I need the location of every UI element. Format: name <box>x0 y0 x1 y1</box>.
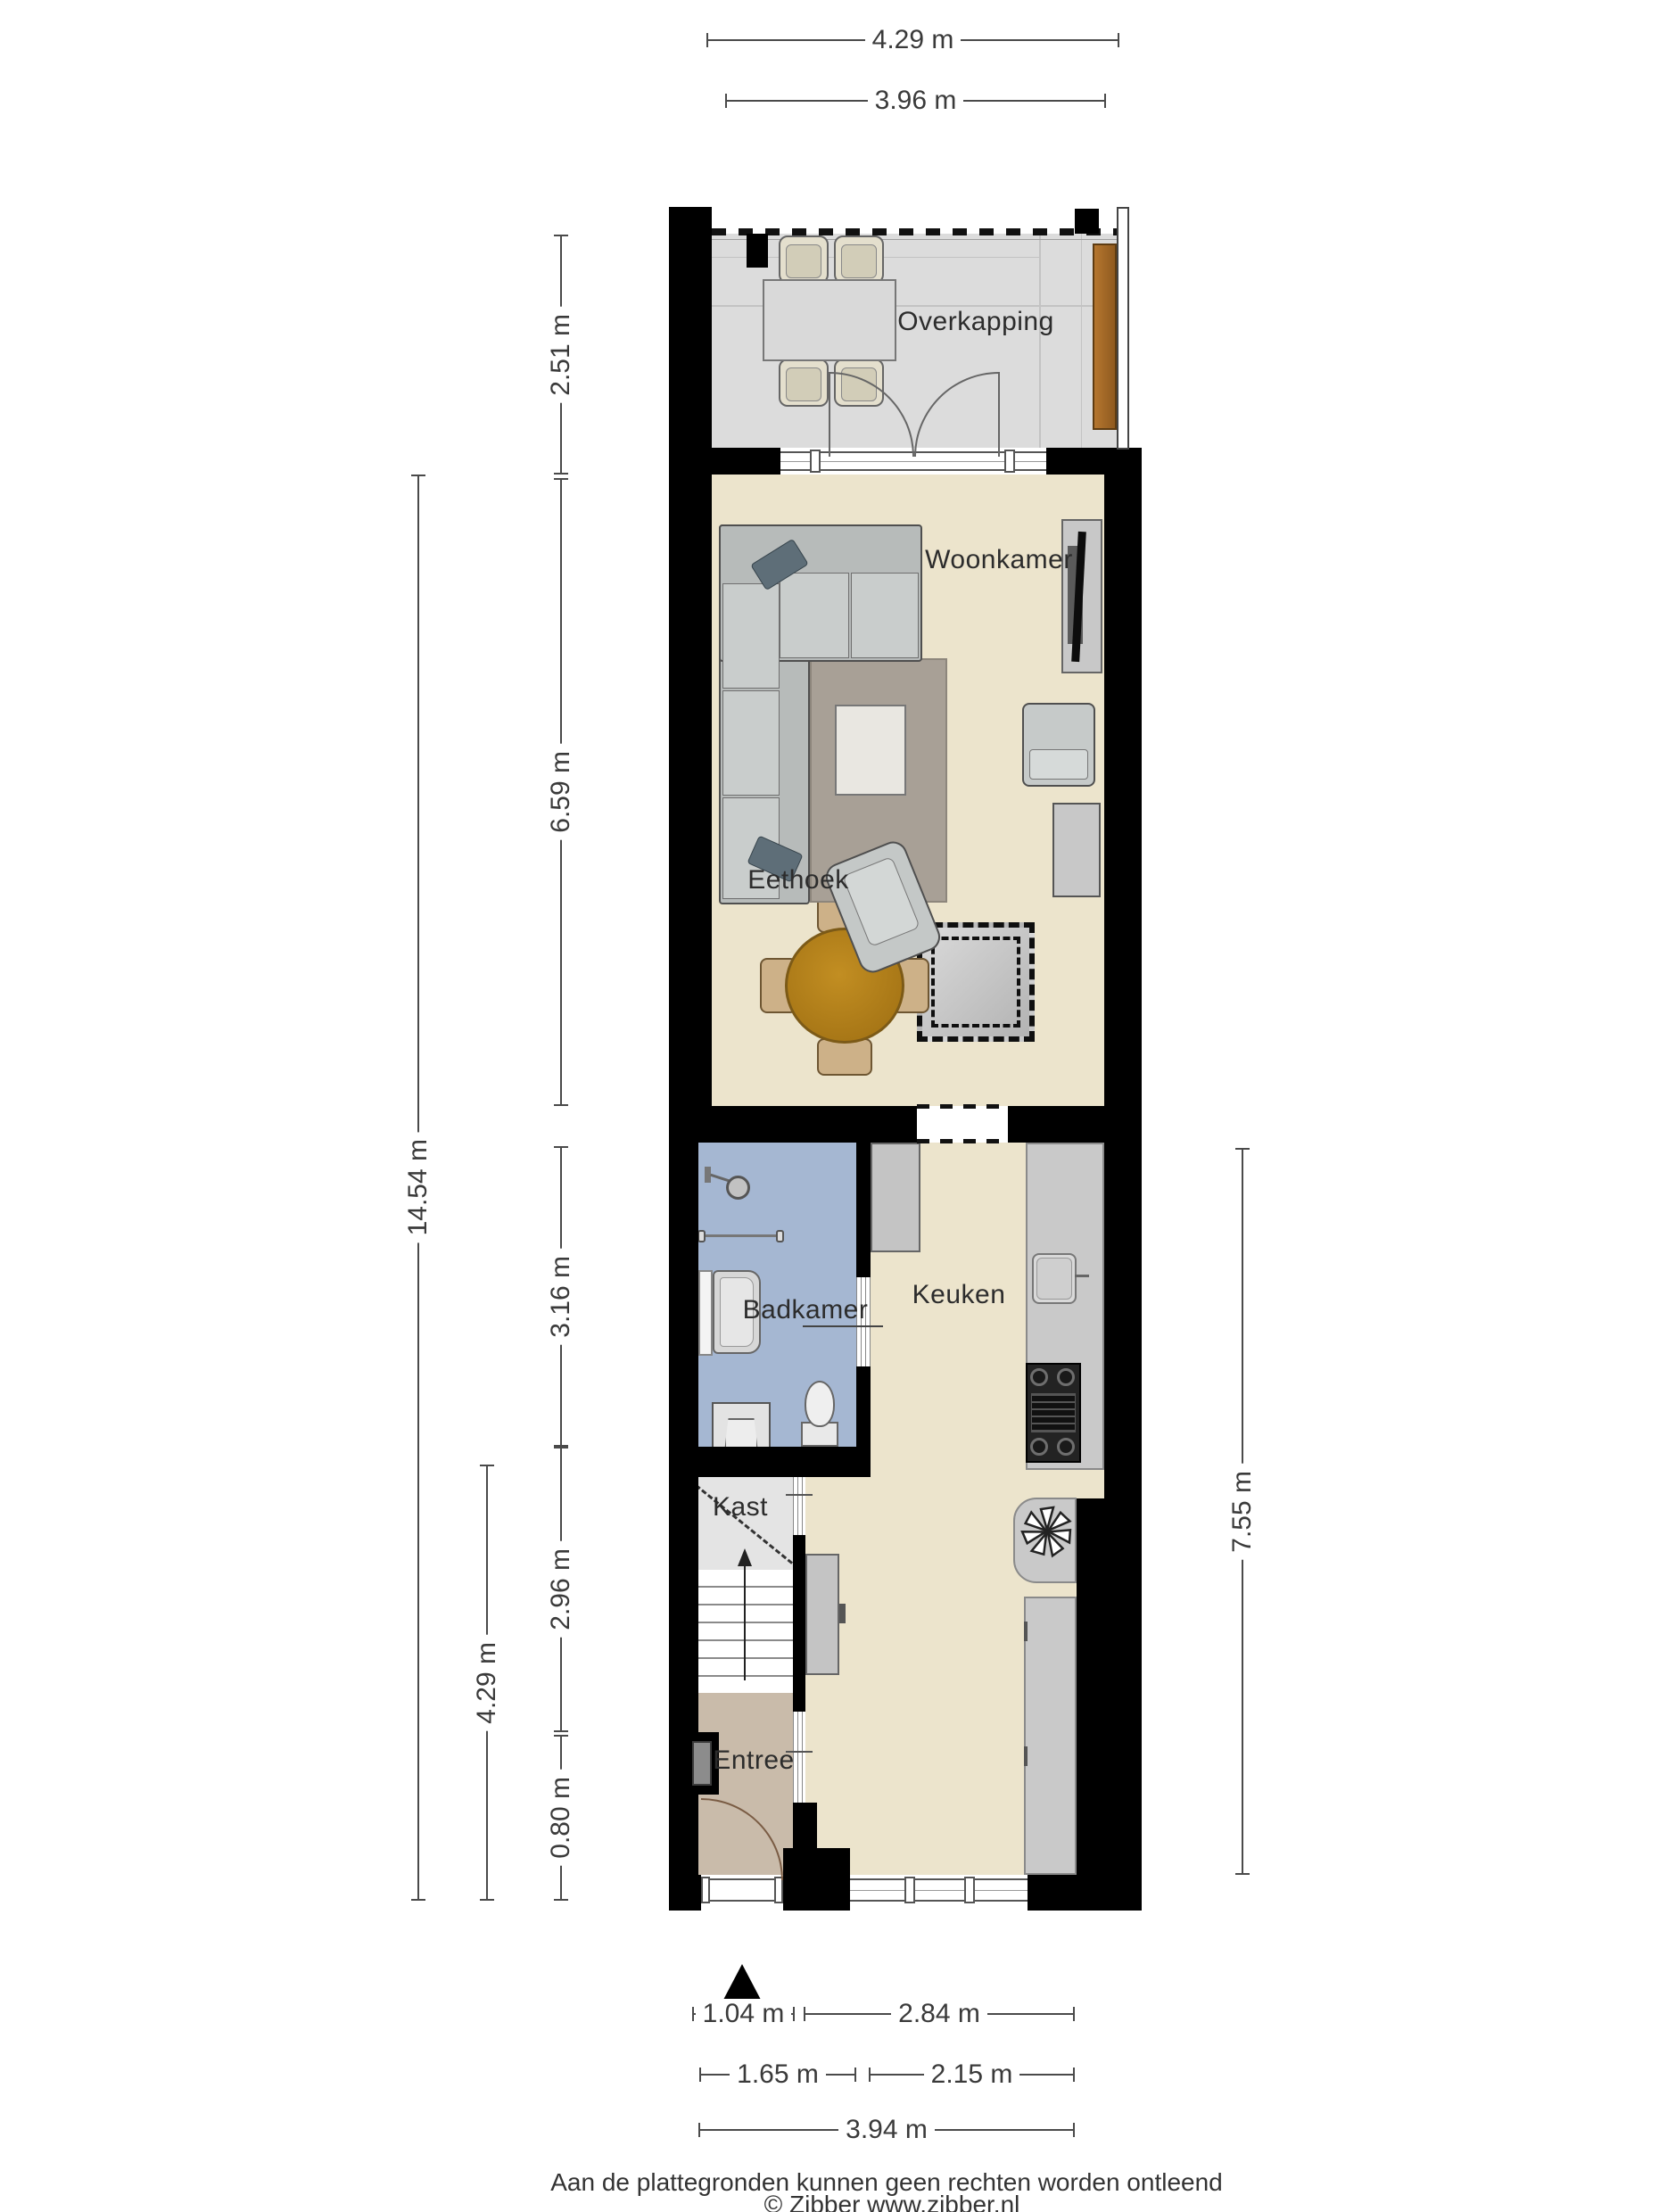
room-label-woonkamer: Woonkamer <box>925 545 1073 575</box>
interior-window <box>793 1477 805 1535</box>
wall-stub <box>1075 209 1099 234</box>
dimension-line-entree-depth: 0.80 m <box>546 1735 576 1901</box>
kitchen-cabinet <box>871 1143 920 1252</box>
side-chair-seat <box>1029 749 1088 780</box>
room-label-eethoek: Eethoek <box>747 865 849 896</box>
coffee-table <box>835 705 906 796</box>
fan-icon <box>1019 1503 1076 1560</box>
wall-segment <box>669 1106 917 1143</box>
dimension-line-bottom-2-84: 2.84 m <box>804 1999 1075 2029</box>
threshold-end <box>701 1877 710 1903</box>
north-arrow-icon <box>723 1964 761 2000</box>
towel-rail <box>702 1234 780 1237</box>
vanity-counter <box>698 1270 713 1356</box>
wall-segment <box>783 1848 850 1911</box>
burner-icon <box>1030 1438 1048 1456</box>
open-edge-line <box>712 239 1117 240</box>
floor-seam <box>1081 234 1082 448</box>
window-mullion <box>810 450 821 473</box>
burner-icon <box>1057 1438 1075 1456</box>
dashed-planned-element-inner <box>931 937 1020 1028</box>
open-edge-dashed-line <box>712 228 1129 235</box>
room-label-overkapping: Overkapping <box>897 307 1054 337</box>
shower-head <box>726 1176 750 1200</box>
window-mullion <box>904 1877 915 1903</box>
wall-stub <box>747 234 768 268</box>
wall-segment <box>1008 1106 1142 1143</box>
sofa-cushion <box>780 573 849 658</box>
wall-segment <box>1046 448 1142 475</box>
dimension-line-bottom-3-94: 3.94 m <box>698 2115 1075 2145</box>
faucet-icon <box>1075 1275 1089 1277</box>
dimension-line-top-outer: 4.29 m <box>706 25 1119 55</box>
stove-grill <box>1031 1393 1076 1432</box>
dimension-line-bottom-2-15: 2.15 m <box>869 2059 1075 2090</box>
cabinet-handle <box>1024 1622 1028 1641</box>
kitchen-counter <box>1024 1597 1077 1875</box>
cabinet <box>805 1554 839 1675</box>
stairs-up-arrow <box>738 1548 752 1566</box>
burner-icon <box>1030 1368 1048 1386</box>
window-mullion <box>1004 450 1015 473</box>
dimension-line-top-inner: 3.96 m <box>725 86 1106 116</box>
terrace-chair <box>779 359 829 407</box>
wall-segment <box>1077 1498 1142 1911</box>
dimension-line-bottom-1-04: 1.04 m <box>692 1999 795 2029</box>
dining-chair <box>817 1038 872 1076</box>
wall-segment <box>793 1535 805 1712</box>
wall-segment <box>669 1875 701 1911</box>
room-label-keuken: Keuken <box>912 1280 1006 1310</box>
wood-fence-panel <box>1093 243 1117 430</box>
window-center-tick <box>786 1494 813 1496</box>
dimension-line-keuken-depth: 7.55 m <box>1227 1148 1258 1875</box>
terrace-table <box>763 279 896 361</box>
wall-segment <box>793 1803 817 1848</box>
room-label-entree: Entree <box>713 1746 794 1776</box>
label-leader-line <box>803 1325 883 1327</box>
floor-plan-page: Overkapping Woonkamer Eethoek Badkamer K… <box>0 0 1659 2212</box>
dimension-line-total-depth: 14.54 m <box>403 475 433 1901</box>
toilet <box>805 1381 835 1427</box>
copyright-text: © Zibber www.zibber.nl <box>764 2191 1020 2212</box>
window-mullion <box>964 1877 975 1903</box>
sofa-cushion <box>851 573 919 658</box>
kitchen-sink-basin <box>1036 1258 1072 1300</box>
wall-segment <box>1028 1875 1142 1911</box>
terrace-chair <box>779 235 829 284</box>
stairs-direction-line <box>744 1563 746 1680</box>
interior-window <box>793 1712 805 1803</box>
terrace-chair <box>834 235 884 284</box>
dimension-line-woonkamer-depth: 6.59 m <box>546 478 576 1106</box>
opening-dashed-line <box>917 1139 1008 1143</box>
cabinet-handle <box>1024 1746 1028 1766</box>
towel-rail-end <box>697 1230 706 1242</box>
sofa-cushion <box>722 583 780 689</box>
floor-seam <box>1039 234 1041 448</box>
wall-segment <box>856 1366 871 1447</box>
wall-segment <box>856 1143 871 1277</box>
cabinet-handle <box>839 1604 846 1623</box>
dimension-line-overkapping-depth: 2.51 m <box>546 235 576 475</box>
dimension-line-badkamer-depth: 3.16 m <box>546 1146 576 1447</box>
wall-segment <box>1104 448 1142 1498</box>
opening-dashed-line <box>917 1104 1008 1109</box>
threshold-end <box>774 1877 783 1903</box>
wall-segment <box>669 1447 871 1477</box>
burner-icon <box>1057 1368 1075 1386</box>
dimension-line-bottom-1-65: 1.65 m <box>699 2059 856 2090</box>
wall-segment <box>669 448 780 475</box>
meter-box <box>692 1741 712 1786</box>
room-label-kast: Kast <box>713 1492 768 1523</box>
dimension-line-hal-depth: 2.96 m <box>546 1447 576 1732</box>
wall-opening <box>917 1106 1008 1143</box>
front-door-threshold <box>701 1878 783 1902</box>
sofa-cushion <box>722 690 780 796</box>
cabinet <box>1052 803 1101 897</box>
towel-rail-end <box>776 1230 784 1242</box>
room-label-badkamer: Badkamer <box>743 1295 869 1325</box>
dimension-line-left-4-29: 4.29 m <box>472 1465 502 1901</box>
wall-segment <box>669 207 712 1106</box>
terrace-post-wall <box>1117 207 1129 450</box>
window <box>850 1878 1028 1902</box>
